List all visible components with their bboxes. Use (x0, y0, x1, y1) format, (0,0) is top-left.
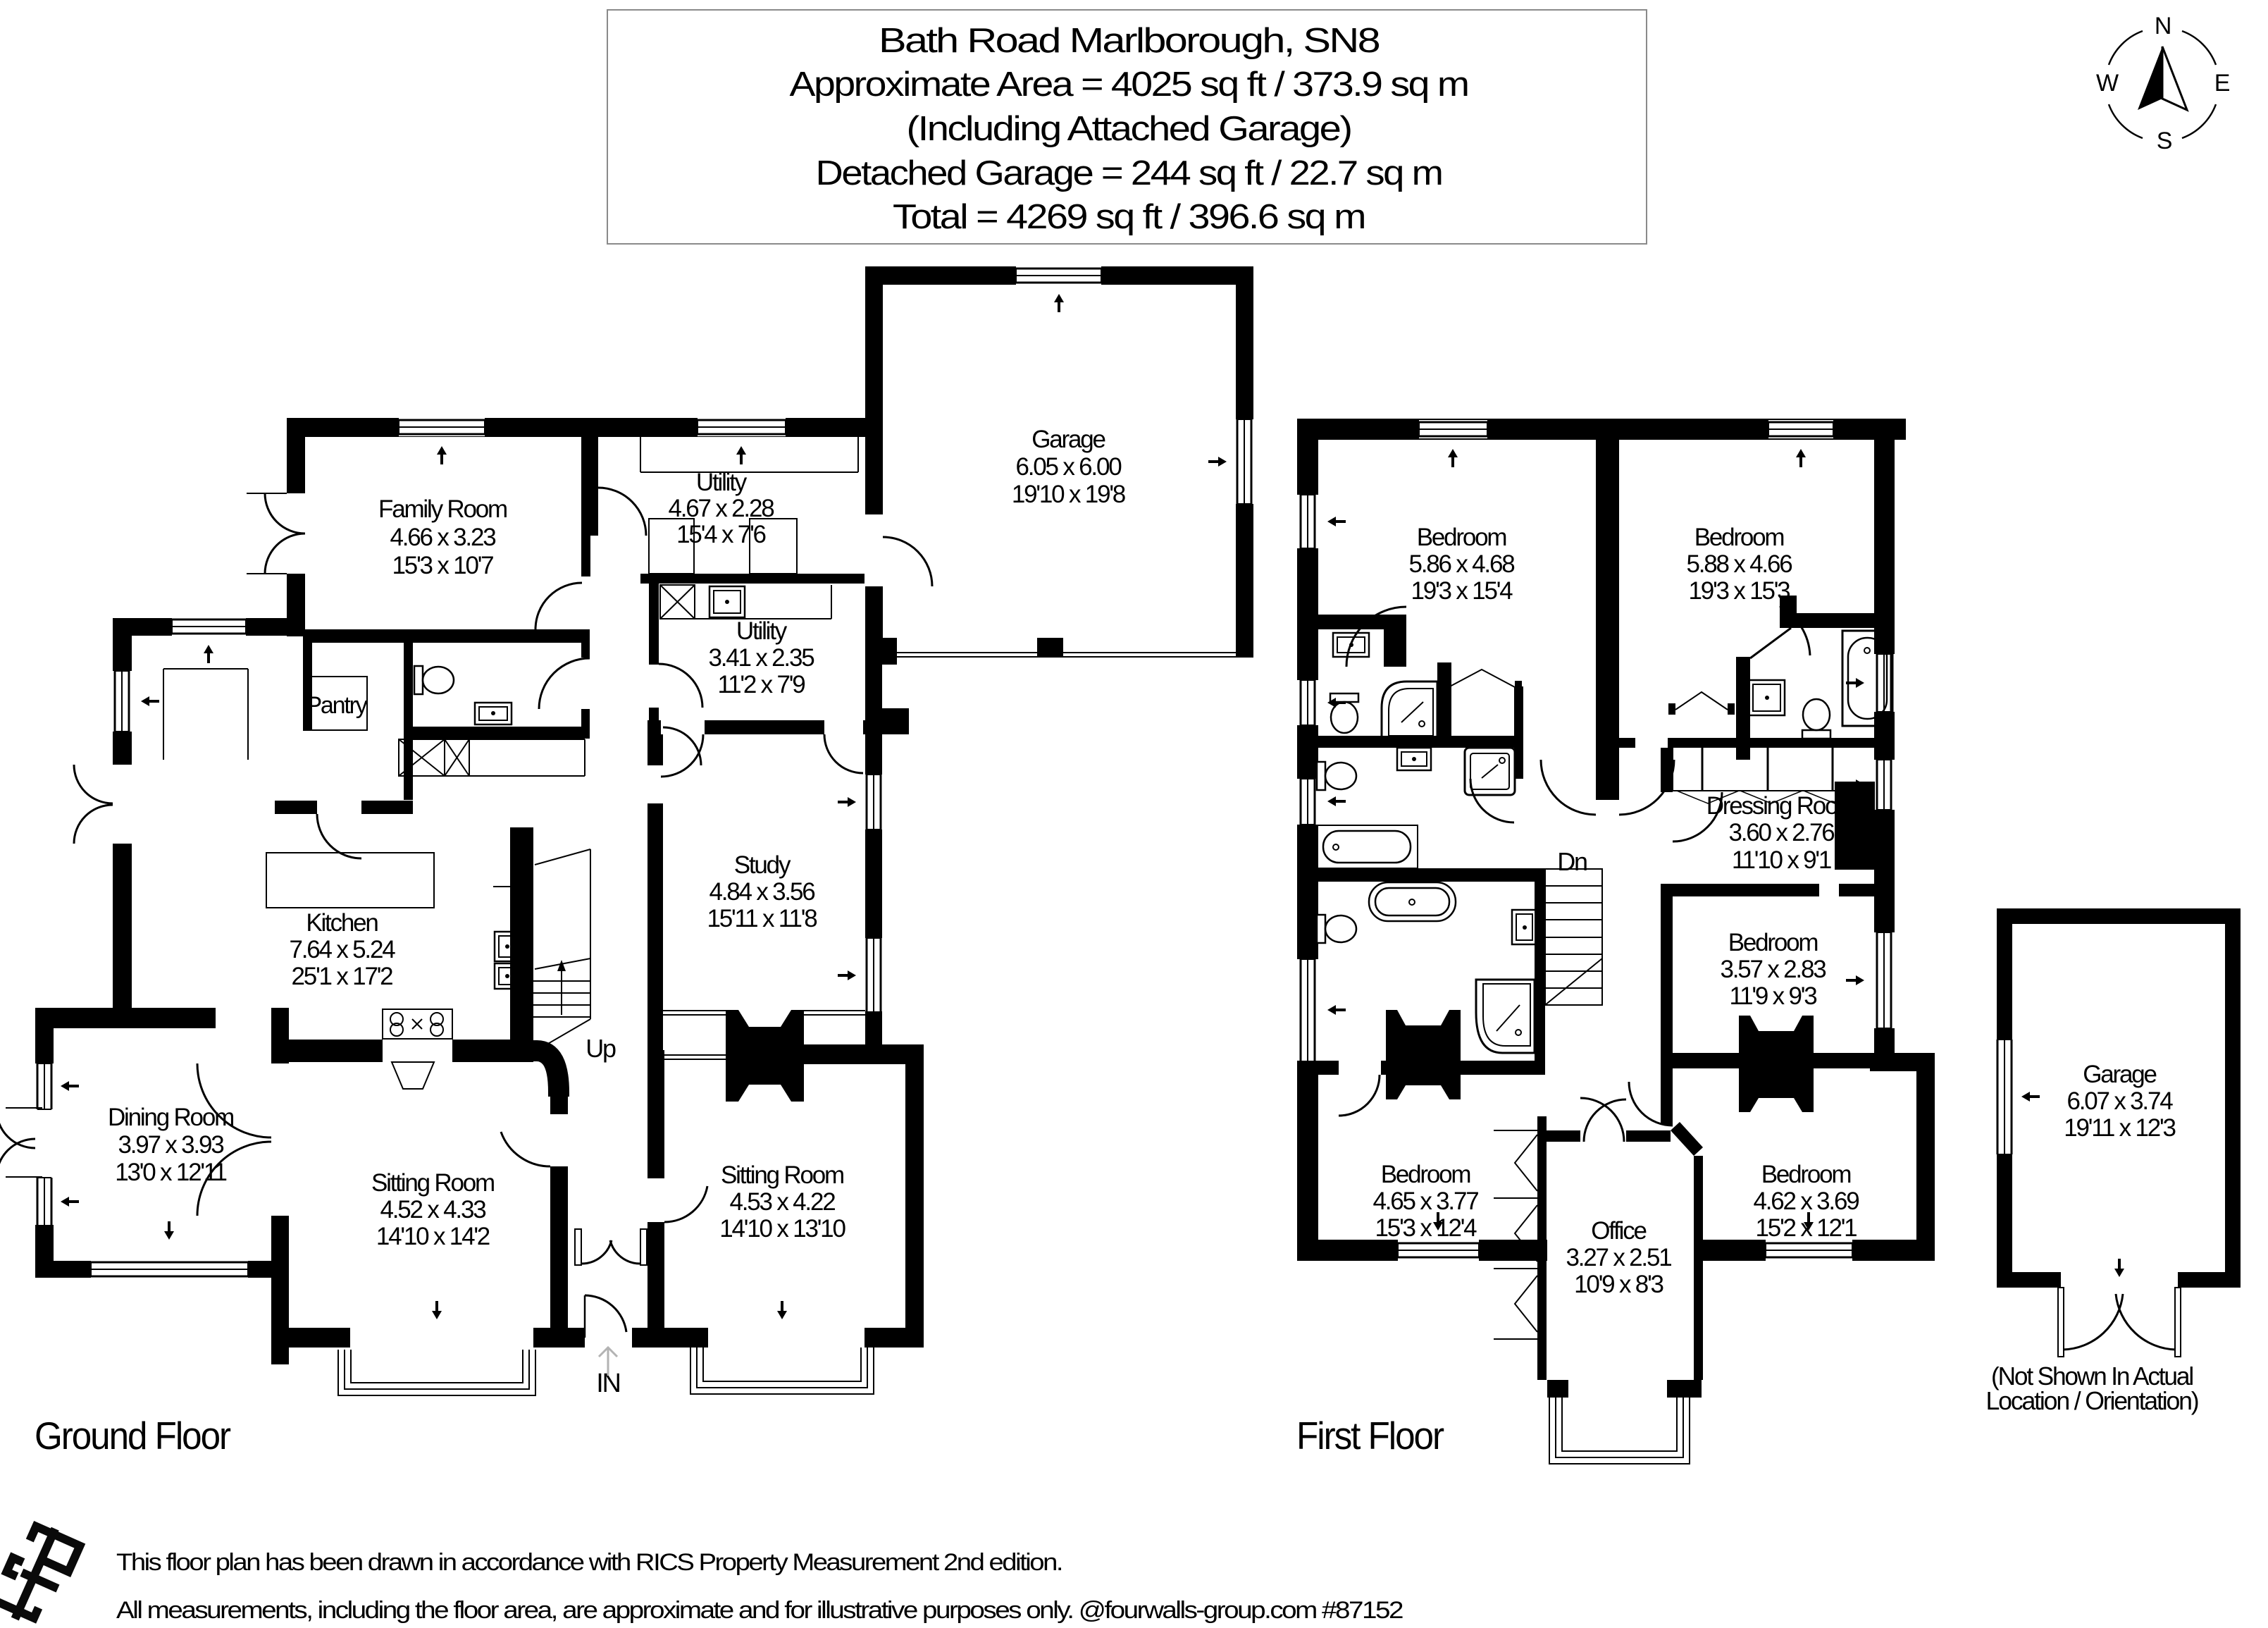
svg-text:11'10 x 9'1: 11'10 x 9'1 (1732, 846, 1831, 874)
svg-text:(Including Attached Garage): (Including Attached Garage) (907, 110, 1351, 148)
svg-text:4.65 x 3.77: 4.65 x 3.77 (1373, 1188, 1479, 1215)
svg-text:Utility: Utility (696, 469, 748, 496)
svg-text:E: E (2214, 70, 2230, 97)
svg-text:Pantry: Pantry (306, 692, 367, 719)
svg-text:S: S (2157, 128, 2172, 154)
svg-text:3.27 x 2.51: 3.27 x 2.51 (1566, 1244, 1672, 1271)
svg-text:Bath Road Marlborough, SN8: Bath Road Marlborough, SN8 (879, 22, 1380, 60)
svg-text:11'9 x 9'3: 11'9 x 9'3 (1729, 982, 1816, 1010)
svg-text:Sitting Room: Sitting Room (721, 1161, 843, 1189)
svg-text:5.88 x 4.66: 5.88 x 4.66 (1687, 550, 1792, 578)
svg-text:Bedroom: Bedroom (1417, 524, 1506, 551)
svg-text:This floor plan has been drawn: This floor plan has been drawn in accord… (116, 1549, 1062, 1576)
svg-text:14'10 x 13'10: 14'10 x 13'10 (719, 1215, 845, 1242)
svg-text:6.05 x 6.00: 6.05 x 6.00 (1016, 453, 1122, 481)
svg-text:Bedroom: Bedroom (1761, 1161, 1851, 1188)
svg-text:Garage: Garage (1031, 426, 1105, 453)
svg-text:13'0 x 12'11: 13'0 x 12'11 (115, 1159, 226, 1186)
svg-text:Bedroom: Bedroom (1728, 929, 1818, 956)
svg-text:Sitting Room: Sitting Room (371, 1169, 494, 1197)
svg-text:Location / Orientation): Location / Orientation) (1986, 1386, 2198, 1415)
svg-text:Bedroom: Bedroom (1381, 1161, 1470, 1188)
svg-text:15'3 x 10'7: 15'3 x 10'7 (392, 552, 494, 579)
svg-text:19'3 x 15'4: 19'3 x 15'4 (1411, 577, 1513, 605)
svg-text:25'1 x 17'2: 25'1 x 17'2 (292, 963, 393, 990)
svg-text:14'10 x 14'2: 14'10 x 14'2 (376, 1223, 490, 1250)
svg-text:4.52 x 4.33: 4.52 x 4.33 (380, 1196, 486, 1223)
svg-text:4.67 x 2.28: 4.67 x 2.28 (669, 495, 774, 522)
svg-text:Dining Room: Dining Room (108, 1104, 233, 1131)
svg-text:7.64 x 5.24: 7.64 x 5.24 (290, 936, 396, 963)
svg-text:11'2 x 7'9: 11'2 x 7'9 (717, 671, 805, 698)
svg-text:N: N (2155, 13, 2170, 39)
svg-text:15'2 x 12'1: 15'2 x 12'1 (1756, 1214, 1857, 1242)
svg-text:3.97 x 3.93: 3.97 x 3.93 (118, 1131, 224, 1159)
svg-text:Utility: Utility (736, 617, 788, 645)
svg-text:4.84 x 3.56: 4.84 x 3.56 (709, 878, 815, 906)
svg-text:All measurements, including th: All measurements, including the floor ar… (116, 1597, 1403, 1624)
svg-text:Up: Up (585, 1034, 616, 1063)
svg-text:19'3 x 15'3: 19'3 x 15'3 (1689, 577, 1790, 605)
svg-text:15'3 x 12'4: 15'3 x 12'4 (1375, 1214, 1477, 1242)
svg-text:4.62 x 3.69: 4.62 x 3.69 (1754, 1188, 1859, 1215)
svg-text:Kitchen: Kitchen (306, 909, 378, 937)
svg-text:6.07 x 3.74: 6.07 x 3.74 (2067, 1087, 2174, 1115)
svg-text:10'9 x 8'3: 10'9 x 8'3 (1574, 1271, 1663, 1298)
svg-text:Total = 4269 sq ft / 396.6 sq: Total = 4269 sq ft / 396.6 sq m (893, 198, 1365, 236)
svg-text:4.53 x 4.22: 4.53 x 4.22 (730, 1188, 836, 1216)
svg-text:Ground Floor: Ground Floor (35, 1414, 231, 1457)
svg-text:Bedroom: Bedroom (1694, 524, 1784, 551)
svg-text:15'4 x 7'6: 15'4 x 7'6 (676, 521, 765, 548)
svg-text:Detached Garage = 244 sq ft /: Detached Garage = 244 sq ft / 22.7 sq m (816, 154, 1442, 192)
svg-text:3.41 x 2.35: 3.41 x 2.35 (709, 644, 814, 672)
svg-text:19'11 x 12'3: 19'11 x 12'3 (2064, 1114, 2175, 1142)
svg-text:Dn: Dn (1557, 847, 1587, 876)
svg-text:Office: Office (1591, 1217, 1646, 1245)
svg-text:3.60 x 2.76: 3.60 x 2.76 (1729, 819, 1835, 846)
svg-text:Study: Study (734, 851, 791, 879)
svg-text:15'11 x 11'8: 15'11 x 11'8 (707, 905, 817, 932)
svg-text:Garage: Garage (2083, 1061, 2156, 1088)
svg-text:Dressing Room: Dressing Room (1706, 792, 1857, 820)
svg-text:4.66 x 3.23: 4.66 x 3.23 (390, 524, 496, 551)
svg-text:First Floor: First Floor (1296, 1414, 1444, 1457)
svg-text:5.86 x 4.68: 5.86 x 4.68 (1409, 550, 1515, 578)
svg-text:Family Room: Family Room (378, 495, 507, 523)
svg-text:W: W (2096, 70, 2119, 97)
svg-text:3.57 x 2.83: 3.57 x 2.83 (1721, 956, 1826, 983)
svg-text:Approximate Area = 4025 sq ft: Approximate Area = 4025 sq ft / 373.9 sq… (790, 66, 1468, 104)
svg-text:19'10 x 19'8: 19'10 x 19'8 (1012, 481, 1125, 508)
